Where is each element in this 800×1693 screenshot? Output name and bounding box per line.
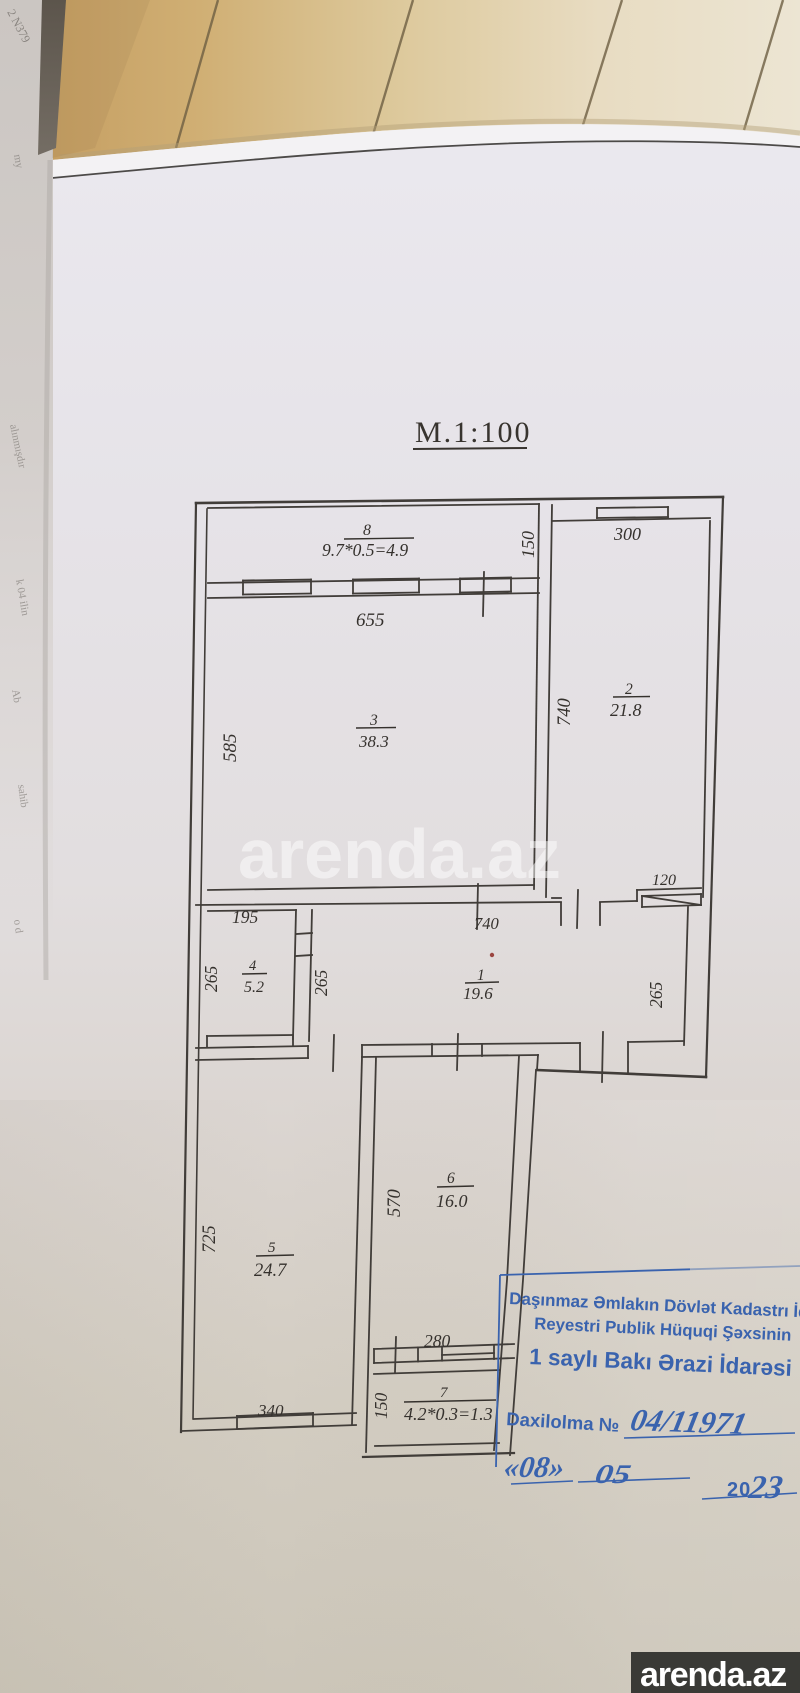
- svg-text:arenda.az: arenda.az: [238, 815, 561, 893]
- svg-text:38.3: 38.3: [358, 732, 389, 751]
- svg-text:265: 265: [311, 970, 331, 997]
- svg-text:o d: o d: [11, 919, 25, 935]
- svg-text:5: 5: [268, 1240, 276, 1256]
- svg-text:05: 05: [593, 1459, 633, 1489]
- svg-text:04/11971: 04/11971: [628, 1402, 751, 1441]
- svg-text:2: 2: [625, 681, 633, 698]
- svg-text:195: 195: [232, 907, 259, 927]
- svg-text:Ab: Ab: [9, 688, 23, 704]
- svg-text:9.7*0.5=4.9: 9.7*0.5=4.9: [322, 540, 408, 560]
- svg-text:265: 265: [646, 982, 666, 1009]
- svg-text:1: 1: [477, 967, 485, 984]
- svg-text:6: 6: [447, 1170, 455, 1187]
- svg-text:M.1:100: M.1:100: [415, 416, 532, 449]
- svg-text:570: 570: [385, 1189, 405, 1218]
- svg-text:arenda.az: arenda.az: [640, 1656, 786, 1693]
- svg-text:740: 740: [555, 698, 575, 727]
- svg-text:585: 585: [220, 734, 241, 763]
- svg-text:24.7: 24.7: [254, 1261, 287, 1281]
- svg-text:300: 300: [613, 524, 641, 544]
- svg-text:19.6: 19.6: [463, 984, 493, 1003]
- svg-text:280: 280: [424, 1331, 451, 1351]
- svg-text:265: 265: [201, 966, 221, 993]
- svg-text:150: 150: [371, 1393, 391, 1420]
- svg-text:«08»: «08»: [502, 1450, 567, 1484]
- svg-text:my: my: [11, 153, 25, 169]
- svg-text:655: 655: [356, 610, 385, 631]
- svg-text:21.8: 21.8: [610, 700, 642, 720]
- svg-text:4.2*0.3=1.3: 4.2*0.3=1.3: [404, 1404, 493, 1424]
- svg-text:23: 23: [746, 1469, 785, 1506]
- svg-text:16.0: 16.0: [436, 1191, 468, 1211]
- svg-text:340: 340: [257, 1401, 284, 1420]
- svg-text:4: 4: [249, 958, 256, 974]
- svg-text:150: 150: [518, 531, 538, 558]
- svg-text:740: 740: [474, 914, 500, 933]
- svg-text:120: 120: [652, 872, 676, 889]
- svg-text:3: 3: [369, 712, 378, 729]
- svg-text:5.2: 5.2: [244, 979, 264, 996]
- svg-text:8: 8: [363, 522, 371, 539]
- svg-text:725: 725: [200, 1225, 220, 1253]
